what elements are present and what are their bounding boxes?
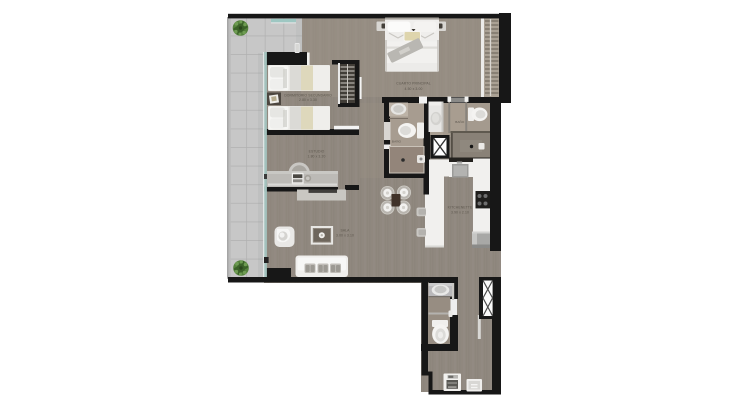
svg-text:KITCHENETTE: KITCHENETTE <box>448 206 473 210</box>
svg-text:3.00 x 3.10: 3.00 x 3.10 <box>336 234 354 238</box>
svg-text:SALA: SALA <box>340 229 350 233</box>
svg-text:1.80 x 3.20: 1.80 x 3.20 <box>308 155 326 159</box>
svg-text:3.90 x 2.10: 3.90 x 2.10 <box>451 211 469 215</box>
svg-text:CUARTO PRINCIPAL: CUARTO PRINCIPAL <box>396 82 430 86</box>
svg-text:DORMITORIO SECUNDARIO: DORMITORIO SECUNDARIO <box>284 94 332 98</box>
svg-text:ESTUDIO: ESTUDIO <box>309 150 325 154</box>
svg-text:4.50 x 3.00: 4.50 x 3.00 <box>405 87 423 91</box>
svg-text:2.80 x 3.30: 2.80 x 3.30 <box>299 98 317 102</box>
svg-text:BAÑO: BAÑO <box>455 119 465 124</box>
svg-text:BAÑO: BAÑO <box>392 139 402 144</box>
